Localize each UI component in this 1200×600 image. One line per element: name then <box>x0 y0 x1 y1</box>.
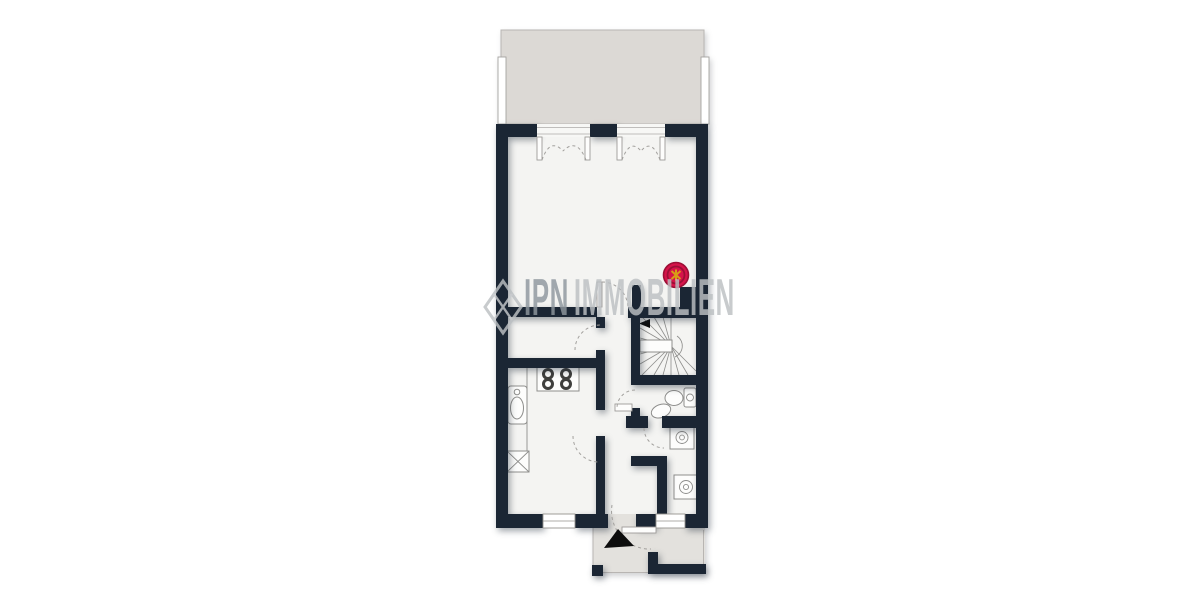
kitchen-sink-basin <box>511 397 524 419</box>
terrace-area <box>501 30 704 124</box>
wall-segment <box>648 564 706 574</box>
dryer-symbol <box>674 475 698 499</box>
entrance-door-leaf <box>622 527 656 533</box>
wall-segment <box>631 307 640 385</box>
washing-machine-symbol <box>670 426 694 449</box>
wall-segment <box>696 124 708 528</box>
floorplan-drawing <box>0 0 1200 600</box>
stair-handrail <box>640 340 672 352</box>
wall-segment <box>631 375 696 385</box>
kitchen-faucet-icon <box>514 389 520 395</box>
door-leaf <box>617 137 622 160</box>
wall-segment <box>596 436 605 514</box>
wall-segment <box>496 124 508 528</box>
wall-segment <box>596 317 605 328</box>
wall-segment <box>626 416 648 428</box>
door-leaf <box>597 282 602 307</box>
stove-burner-icon <box>562 370 571 379</box>
toilet-cistern <box>684 388 696 407</box>
door-leaf <box>537 137 542 160</box>
wall-segment <box>636 514 656 528</box>
wall-segment <box>662 416 696 428</box>
chimney-marker <box>664 263 689 288</box>
door-leaf <box>660 137 665 160</box>
stove-burner-icon <box>562 380 571 389</box>
french-door-opening <box>537 124 590 137</box>
wall-segment <box>508 307 597 317</box>
door-leaf <box>585 137 590 160</box>
wall-segment <box>596 368 605 410</box>
wall-segment <box>685 514 708 528</box>
chimney-stub-wall <box>632 285 641 307</box>
wall-segment <box>657 456 667 514</box>
wall-segment <box>496 514 543 528</box>
french-door-opening <box>617 124 665 137</box>
terrace-side-wall-right <box>701 57 709 124</box>
wall-segment <box>590 124 617 137</box>
entrance-threshold <box>608 514 636 528</box>
floorplan-page: { "watermark": { "brand_primary": "IPN",… <box>0 0 1200 600</box>
wall-segment <box>596 350 605 358</box>
toilet-bowl-symbol <box>665 391 683 406</box>
wall-segment <box>575 514 608 528</box>
stove-burner-icon <box>544 380 553 389</box>
terrace-side-wall-left <box>498 57 506 124</box>
wall-segment <box>508 358 605 368</box>
chimney-block <box>680 287 696 307</box>
stove-burner-icon <box>544 370 553 379</box>
porch-post <box>592 565 603 576</box>
